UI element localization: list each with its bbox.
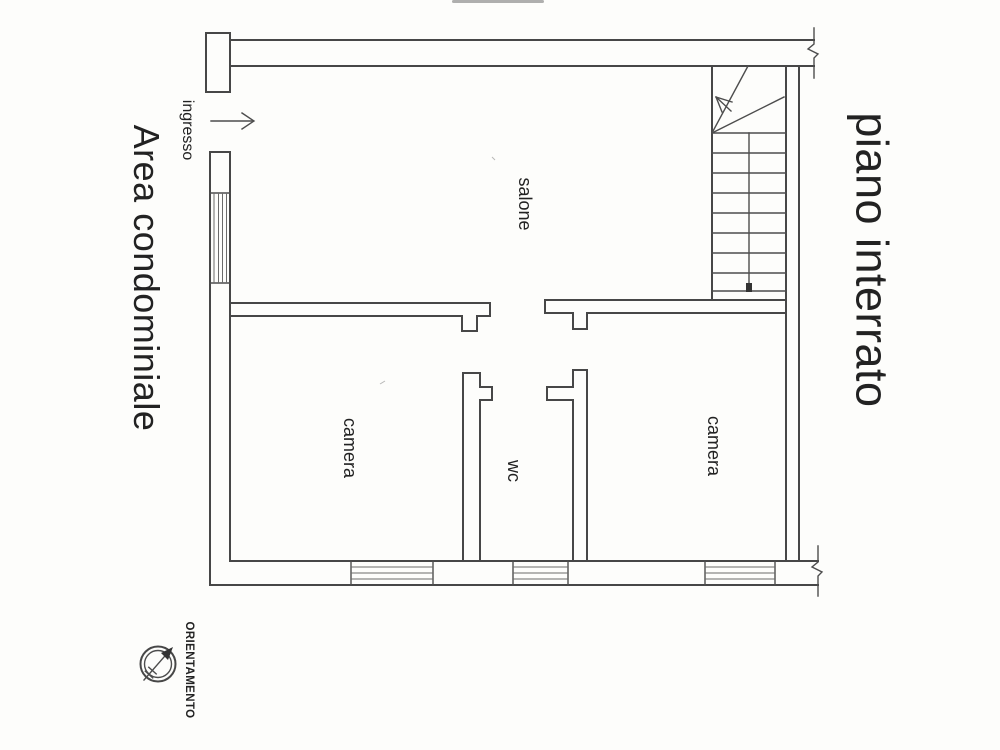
- room-label-wc: wc: [505, 460, 523, 482]
- exterior-area-label: Area condominiale: [128, 125, 164, 432]
- scan-smudge: [452, 0, 544, 3]
- right-wall: [786, 66, 799, 561]
- room-label-camera-left: camera: [341, 418, 359, 478]
- entrance-arrow: [211, 113, 254, 129]
- north-arrow-icon: [144, 647, 173, 680]
- window-left-wall: [210, 193, 230, 283]
- window-bottom-1: [351, 561, 433, 585]
- wall-salone-camera-right: [545, 300, 786, 329]
- top-wall: [206, 28, 818, 92]
- interior-walls: [230, 300, 786, 561]
- compass: [141, 647, 176, 682]
- floor-plan-page: piano interrato Area condominiale ingres…: [0, 0, 1000, 750]
- compass-label: ORIENTAMENTO: [182, 621, 194, 718]
- room-label-camera-right: camera: [705, 416, 723, 476]
- window-bottom-2: [513, 561, 568, 585]
- scan-artifacts: [380, 157, 495, 384]
- plan-title: piano interrato: [850, 112, 895, 407]
- wall-salone-camera-left: [230, 303, 490, 331]
- entrance-pillar: [206, 33, 230, 92]
- room-label-salone: salone: [516, 177, 534, 230]
- staircase: [712, 66, 786, 299]
- wall-break-mark-bottom: [812, 546, 822, 596]
- left-wall: [210, 152, 230, 585]
- wc-wall-right: [547, 370, 587, 561]
- bottom-wall: [210, 546, 822, 596]
- wall-break-mark-top: [808, 28, 818, 78]
- entrance-label: ingresso: [179, 100, 195, 160]
- stair-start-mark: [746, 283, 752, 292]
- wc-wall-left: [463, 373, 492, 561]
- window-bottom-3: [705, 561, 775, 585]
